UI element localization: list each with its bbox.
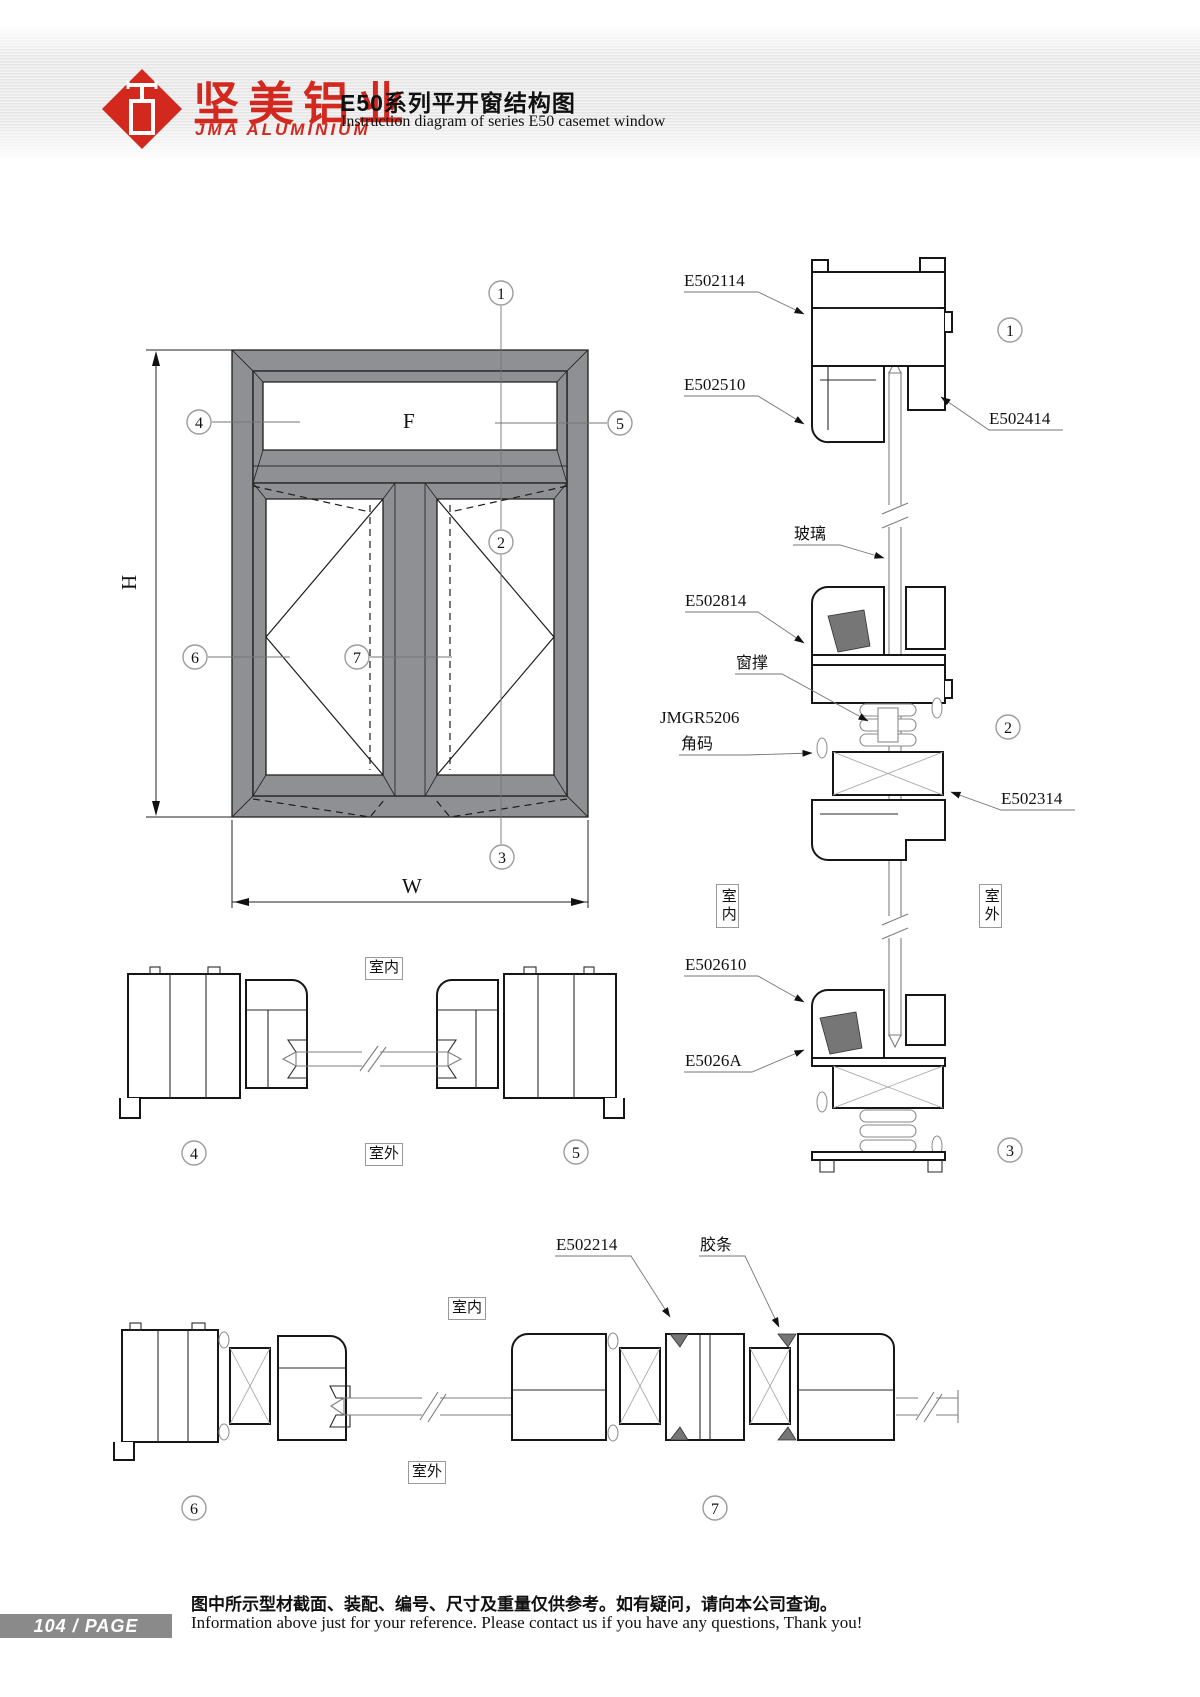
svg-text:7: 7 — [353, 650, 361, 667]
section-3-profile — [812, 990, 945, 1172]
window-stay-springs — [860, 704, 916, 746]
vertical-section-drawing: E502114 E502510 E502414 玻璃 E502814 窗撑 JM… — [660, 258, 1075, 1172]
svg-text:4: 4 — [195, 415, 203, 432]
drawing-sheet: F H W 1 2 3 4 5 6 7 — [0, 0, 1200, 1697]
svg-text:1: 1 — [1006, 323, 1014, 340]
page-label: PAGE — [85, 1616, 139, 1636]
svg-text:7: 7 — [711, 1501, 719, 1518]
svg-text:JMGR5206: JMGR5206 — [660, 708, 739, 727]
section-callout-3: 3 — [998, 1138, 1022, 1162]
part-label-gasket: 胶条 — [699, 1235, 779, 1327]
svg-text:6: 6 — [191, 650, 199, 667]
elevation-callout-7: 7 — [345, 645, 369, 669]
fixed-pane-label: F — [403, 409, 415, 433]
page-number-bar: 104 / PAGE — [0, 1614, 172, 1638]
svg-text:玻璃: 玻璃 — [794, 524, 826, 543]
section-7-profiles — [512, 1333, 894, 1441]
elevation-callout-6: 6 — [183, 645, 207, 669]
left-sash-opening-symbol — [266, 499, 383, 775]
svg-text:5: 5 — [616, 416, 624, 433]
footer-note-en: Information above just for your referenc… — [191, 1613, 862, 1633]
part-label-e5026a: E5026A — [684, 1050, 804, 1072]
part-label-e502314: E502314 — [951, 789, 1075, 810]
elevation-callout-4: 4 — [187, 410, 211, 434]
section-callout-1: 1 — [998, 318, 1022, 342]
svg-text:E502814: E502814 — [685, 591, 747, 610]
svg-text:E502214: E502214 — [556, 1235, 618, 1254]
section-callout-2: 2 — [996, 715, 1020, 739]
section-2-profile — [812, 587, 952, 860]
horizontal-section-bottom: E502214 胶条 6 7 — [114, 1235, 958, 1520]
glass-pane-horizontal — [283, 1046, 461, 1072]
svg-text:E5026A: E5026A — [685, 1051, 742, 1070]
outdoor-tag-mid: 室外 — [365, 1143, 403, 1166]
svg-text:5: 5 — [572, 1145, 580, 1162]
indoor-tag-mid: 室内 — [365, 957, 403, 980]
outdoor-tag-bottom: 室外 — [408, 1461, 446, 1484]
elevation-callout-1: 1 — [489, 281, 513, 305]
section-callout-7: 7 — [703, 1496, 727, 1520]
svg-text:2: 2 — [497, 535, 505, 552]
glass-pane-bottom-left — [331, 1392, 533, 1422]
svg-text:E502314: E502314 — [1001, 789, 1063, 808]
svg-text:E502114: E502114 — [684, 271, 745, 290]
part-label-jmgr5206: JMGR5206 角码 — [660, 708, 812, 755]
footer-note-cn: 图中所示型材截面、装配、编号、尺寸及重量仅供参考。如有疑问，请向本公司查询。 — [191, 1590, 837, 1615]
height-dimension-label: H — [117, 575, 141, 590]
svg-text:6: 6 — [190, 1501, 198, 1518]
elevation-callout-2: 2 — [489, 530, 513, 554]
indoor-tag-bottom: 室内 — [448, 1297, 486, 1320]
elevation-drawing: F H W 1 2 3 4 5 6 7 — [117, 281, 632, 908]
svg-text:3: 3 — [498, 850, 506, 867]
width-dimension-label: W — [402, 874, 422, 898]
svg-text:窗撑: 窗撑 — [736, 653, 768, 672]
svg-text:胶条: 胶条 — [700, 1235, 732, 1254]
section-callout-5: 5 — [564, 1140, 588, 1164]
page-number: 104 — [34, 1616, 67, 1636]
section-callout-6: 6 — [182, 1496, 206, 1520]
outdoor-tag-vertical: 室外 — [979, 884, 1002, 928]
part-label-glass: 玻璃 — [793, 524, 884, 558]
part-label-e502510: E502510 — [684, 375, 804, 424]
horizontal-section-top: 4 5 — [120, 967, 624, 1165]
svg-text:3: 3 — [1006, 1143, 1014, 1160]
part-label-e502114: E502114 — [684, 271, 804, 314]
section-callout-4: 4 — [182, 1141, 206, 1165]
section-1-profile — [812, 258, 952, 442]
part-label-e502610: E502610 — [684, 955, 804, 1002]
svg-text:4: 4 — [190, 1146, 198, 1163]
glass-pane-bottom-right — [896, 1390, 958, 1423]
svg-text:1: 1 — [497, 286, 505, 303]
part-label-e502814: E502814 — [685, 591, 804, 643]
elevation-callout-5: 5 — [608, 411, 632, 435]
svg-text:E502414: E502414 — [989, 409, 1051, 428]
svg-text:E502510: E502510 — [684, 375, 745, 394]
part-label-e502414: E502414 — [941, 397, 1063, 430]
svg-text:E502610: E502610 — [685, 955, 746, 974]
indoor-tag-vertical: 室内 — [716, 884, 739, 928]
part-label-e502214: E502214 — [555, 1235, 670, 1317]
section-6-profiles — [114, 1323, 350, 1460]
svg-text:2: 2 — [1004, 720, 1012, 737]
page-separator: / — [73, 1616, 79, 1636]
svg-text:角码: 角码 — [681, 734, 713, 753]
elevation-callout-3: 3 — [490, 845, 514, 869]
